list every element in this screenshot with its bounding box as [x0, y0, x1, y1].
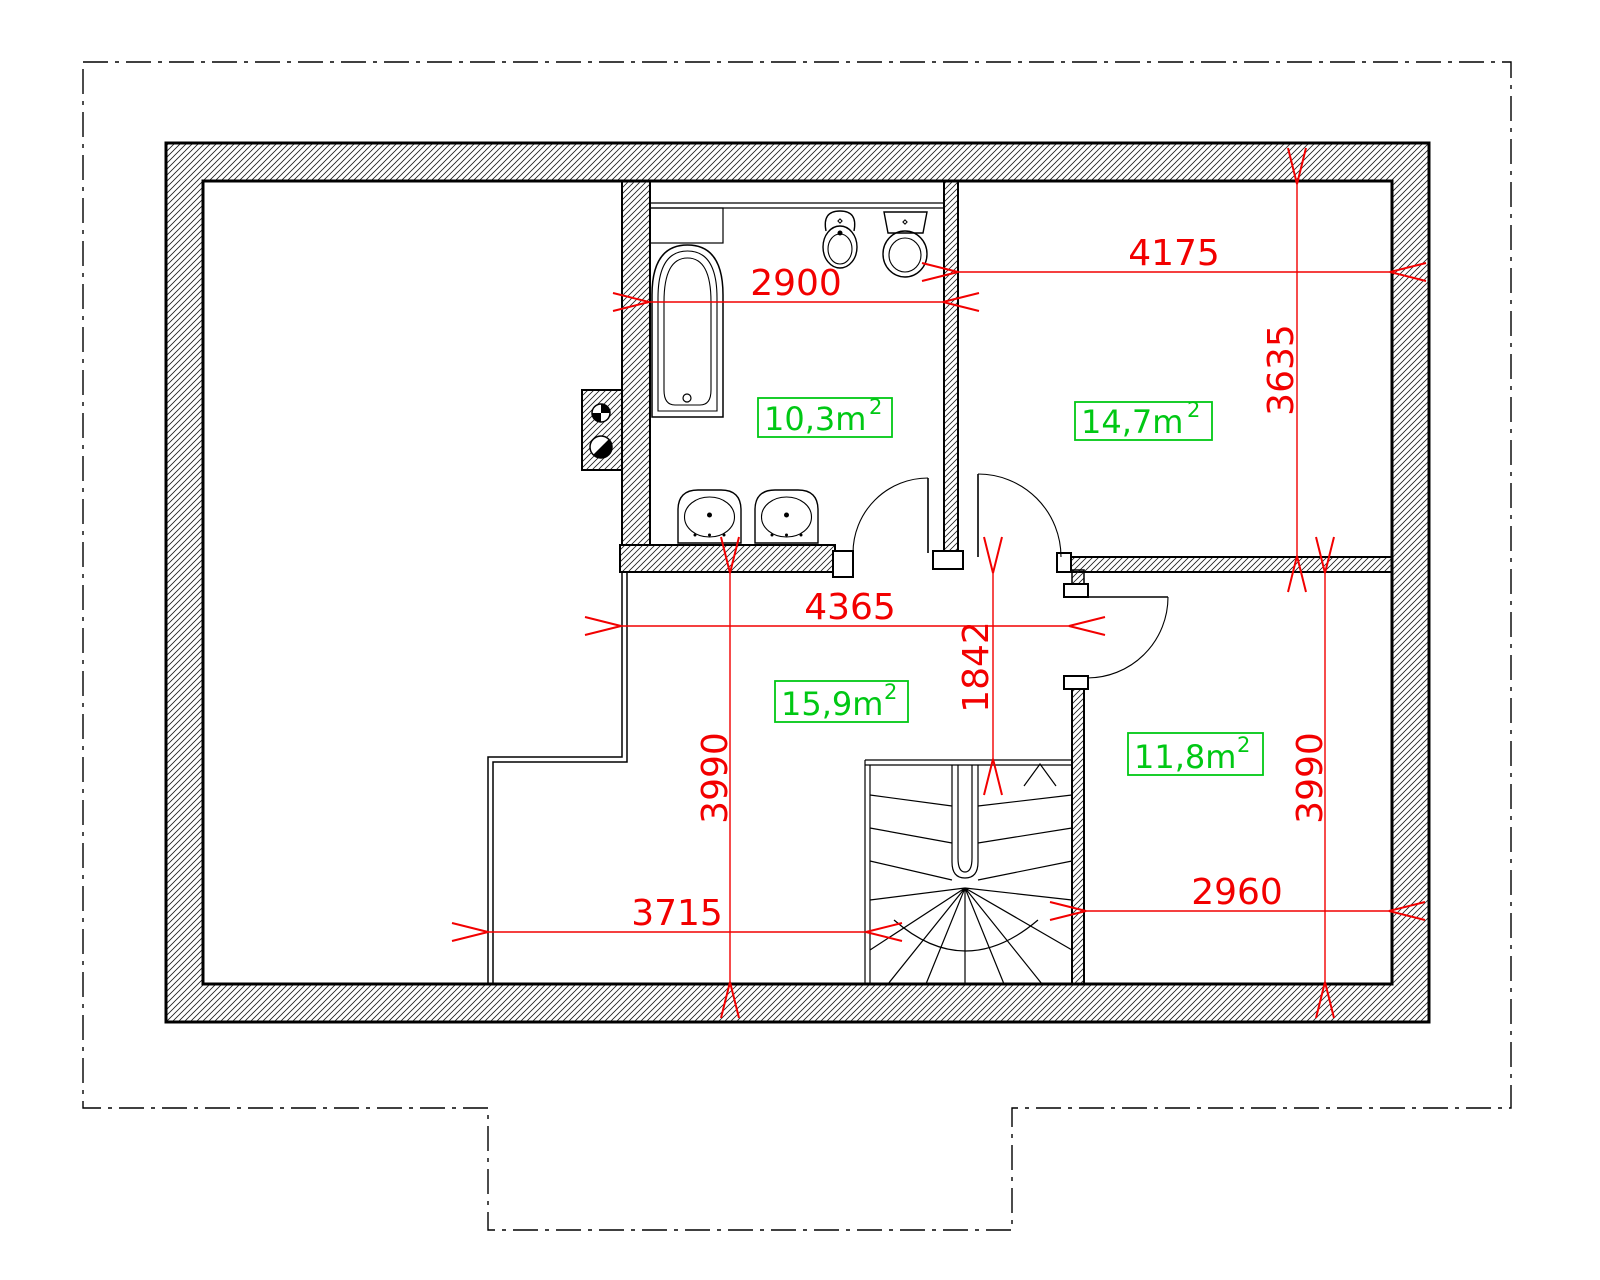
dim-text-hall-width: 4365 — [804, 587, 896, 628]
dim-text-right-room-width: 2960 — [1191, 872, 1283, 913]
dim-text-hall-lower-width: 3715 — [631, 893, 723, 934]
dim-text-hall-stair-offset: 1842 — [956, 621, 997, 713]
wall-bathroom-left — [622, 181, 650, 545]
area-value: 10,3m — [764, 400, 866, 438]
paper-background — [0, 0, 1600, 1280]
door-jamb — [833, 551, 853, 577]
dim-text-bedroom-width: 4175 — [1128, 233, 1220, 274]
dim-text-hall-depth: 3990 — [695, 732, 736, 824]
wall-hall-top — [620, 545, 835, 572]
door-jamb — [1064, 584, 1088, 597]
door-jamb — [1064, 676, 1088, 689]
door-jamb — [1057, 553, 1071, 572]
wall-right-room-top — [1065, 557, 1392, 572]
wall-bathroom-bedroom — [944, 181, 958, 553]
door-jamb — [933, 551, 963, 569]
wall-stub-right-room-door — [1072, 570, 1084, 585]
floor-plan-drawing: 2900 4175 3635 4365 1842 3990 3715 2960 … — [0, 0, 1600, 1280]
area-sup: 2 — [1187, 398, 1200, 422]
dim-text-right-room-depth: 3990 — [1290, 732, 1331, 824]
area-sup: 2 — [884, 680, 897, 704]
floor-plan-page: 2900 4175 3635 4365 1842 3990 3715 2960 … — [0, 0, 1600, 1280]
area-sup: 2 — [1237, 733, 1250, 757]
wall-stair-right — [1072, 689, 1084, 984]
area-sup: 2 — [869, 395, 882, 419]
area-value: 14,7m — [1081, 403, 1183, 441]
dim-text-bathroom-width: 2900 — [750, 263, 842, 304]
area-value: 15,9m — [781, 685, 883, 723]
dim-text-bedroom-depth: 3635 — [1261, 324, 1302, 416]
area-value: 11,8m — [1134, 738, 1236, 776]
